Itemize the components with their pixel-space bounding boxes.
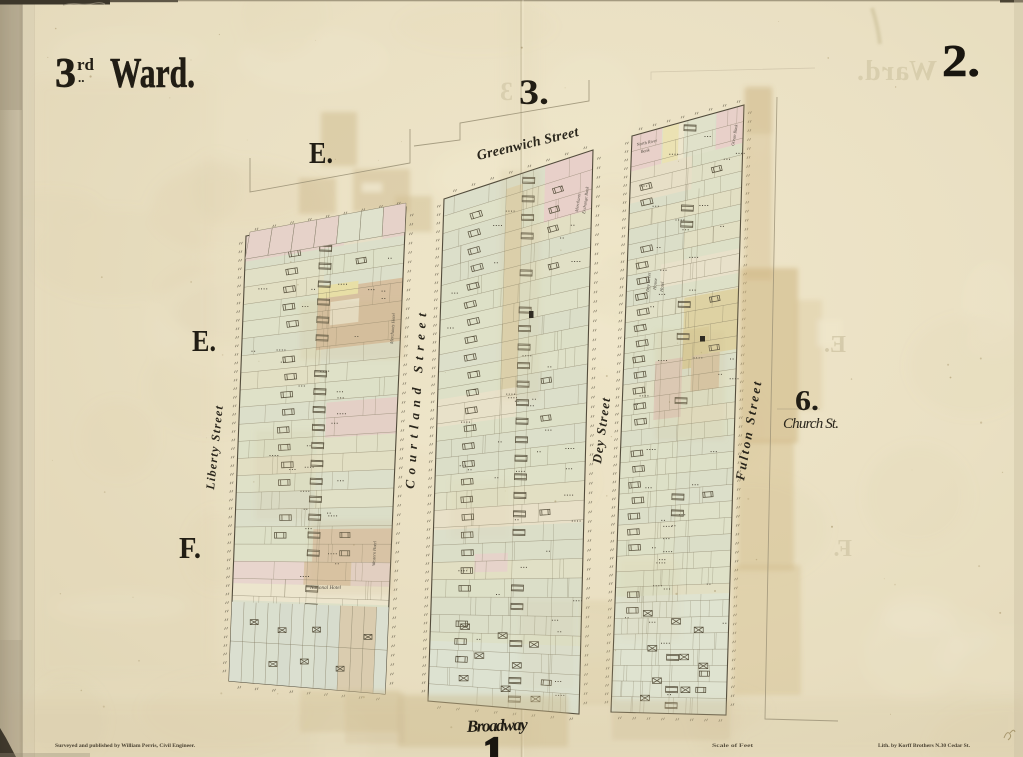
svg-text:6.: 6. bbox=[795, 385, 819, 417]
svg-text:E.: E. bbox=[824, 332, 846, 358]
svg-text:2.: 2. bbox=[942, 36, 980, 86]
svg-text:3: 3 bbox=[55, 51, 76, 97]
svg-text:3.: 3. bbox=[519, 72, 549, 112]
svg-text:E.: E. bbox=[309, 135, 333, 170]
svg-text:E.: E. bbox=[192, 323, 216, 358]
svg-text:Ward.: Ward. bbox=[857, 56, 937, 87]
svg-text:F.: F. bbox=[834, 536, 852, 562]
svg-text:Lith. by Korff Brothers N.30 C: Lith. by Korff Brothers N.30 Cedar St. bbox=[878, 743, 971, 749]
svg-text:Ward.: Ward. bbox=[110, 51, 195, 97]
svg-text:Surveyed and published by Will: Surveyed and published by William Perris… bbox=[55, 743, 196, 749]
svg-text:3: 3 bbox=[500, 77, 513, 106]
svg-text:..: .. bbox=[78, 70, 85, 85]
svg-text:1: 1 bbox=[483, 730, 504, 757]
svg-text:Church St.: Church St. bbox=[783, 416, 839, 432]
svg-text:Scale of Feet: Scale of Feet bbox=[712, 743, 753, 749]
svg-text:F.: F. bbox=[179, 530, 201, 565]
